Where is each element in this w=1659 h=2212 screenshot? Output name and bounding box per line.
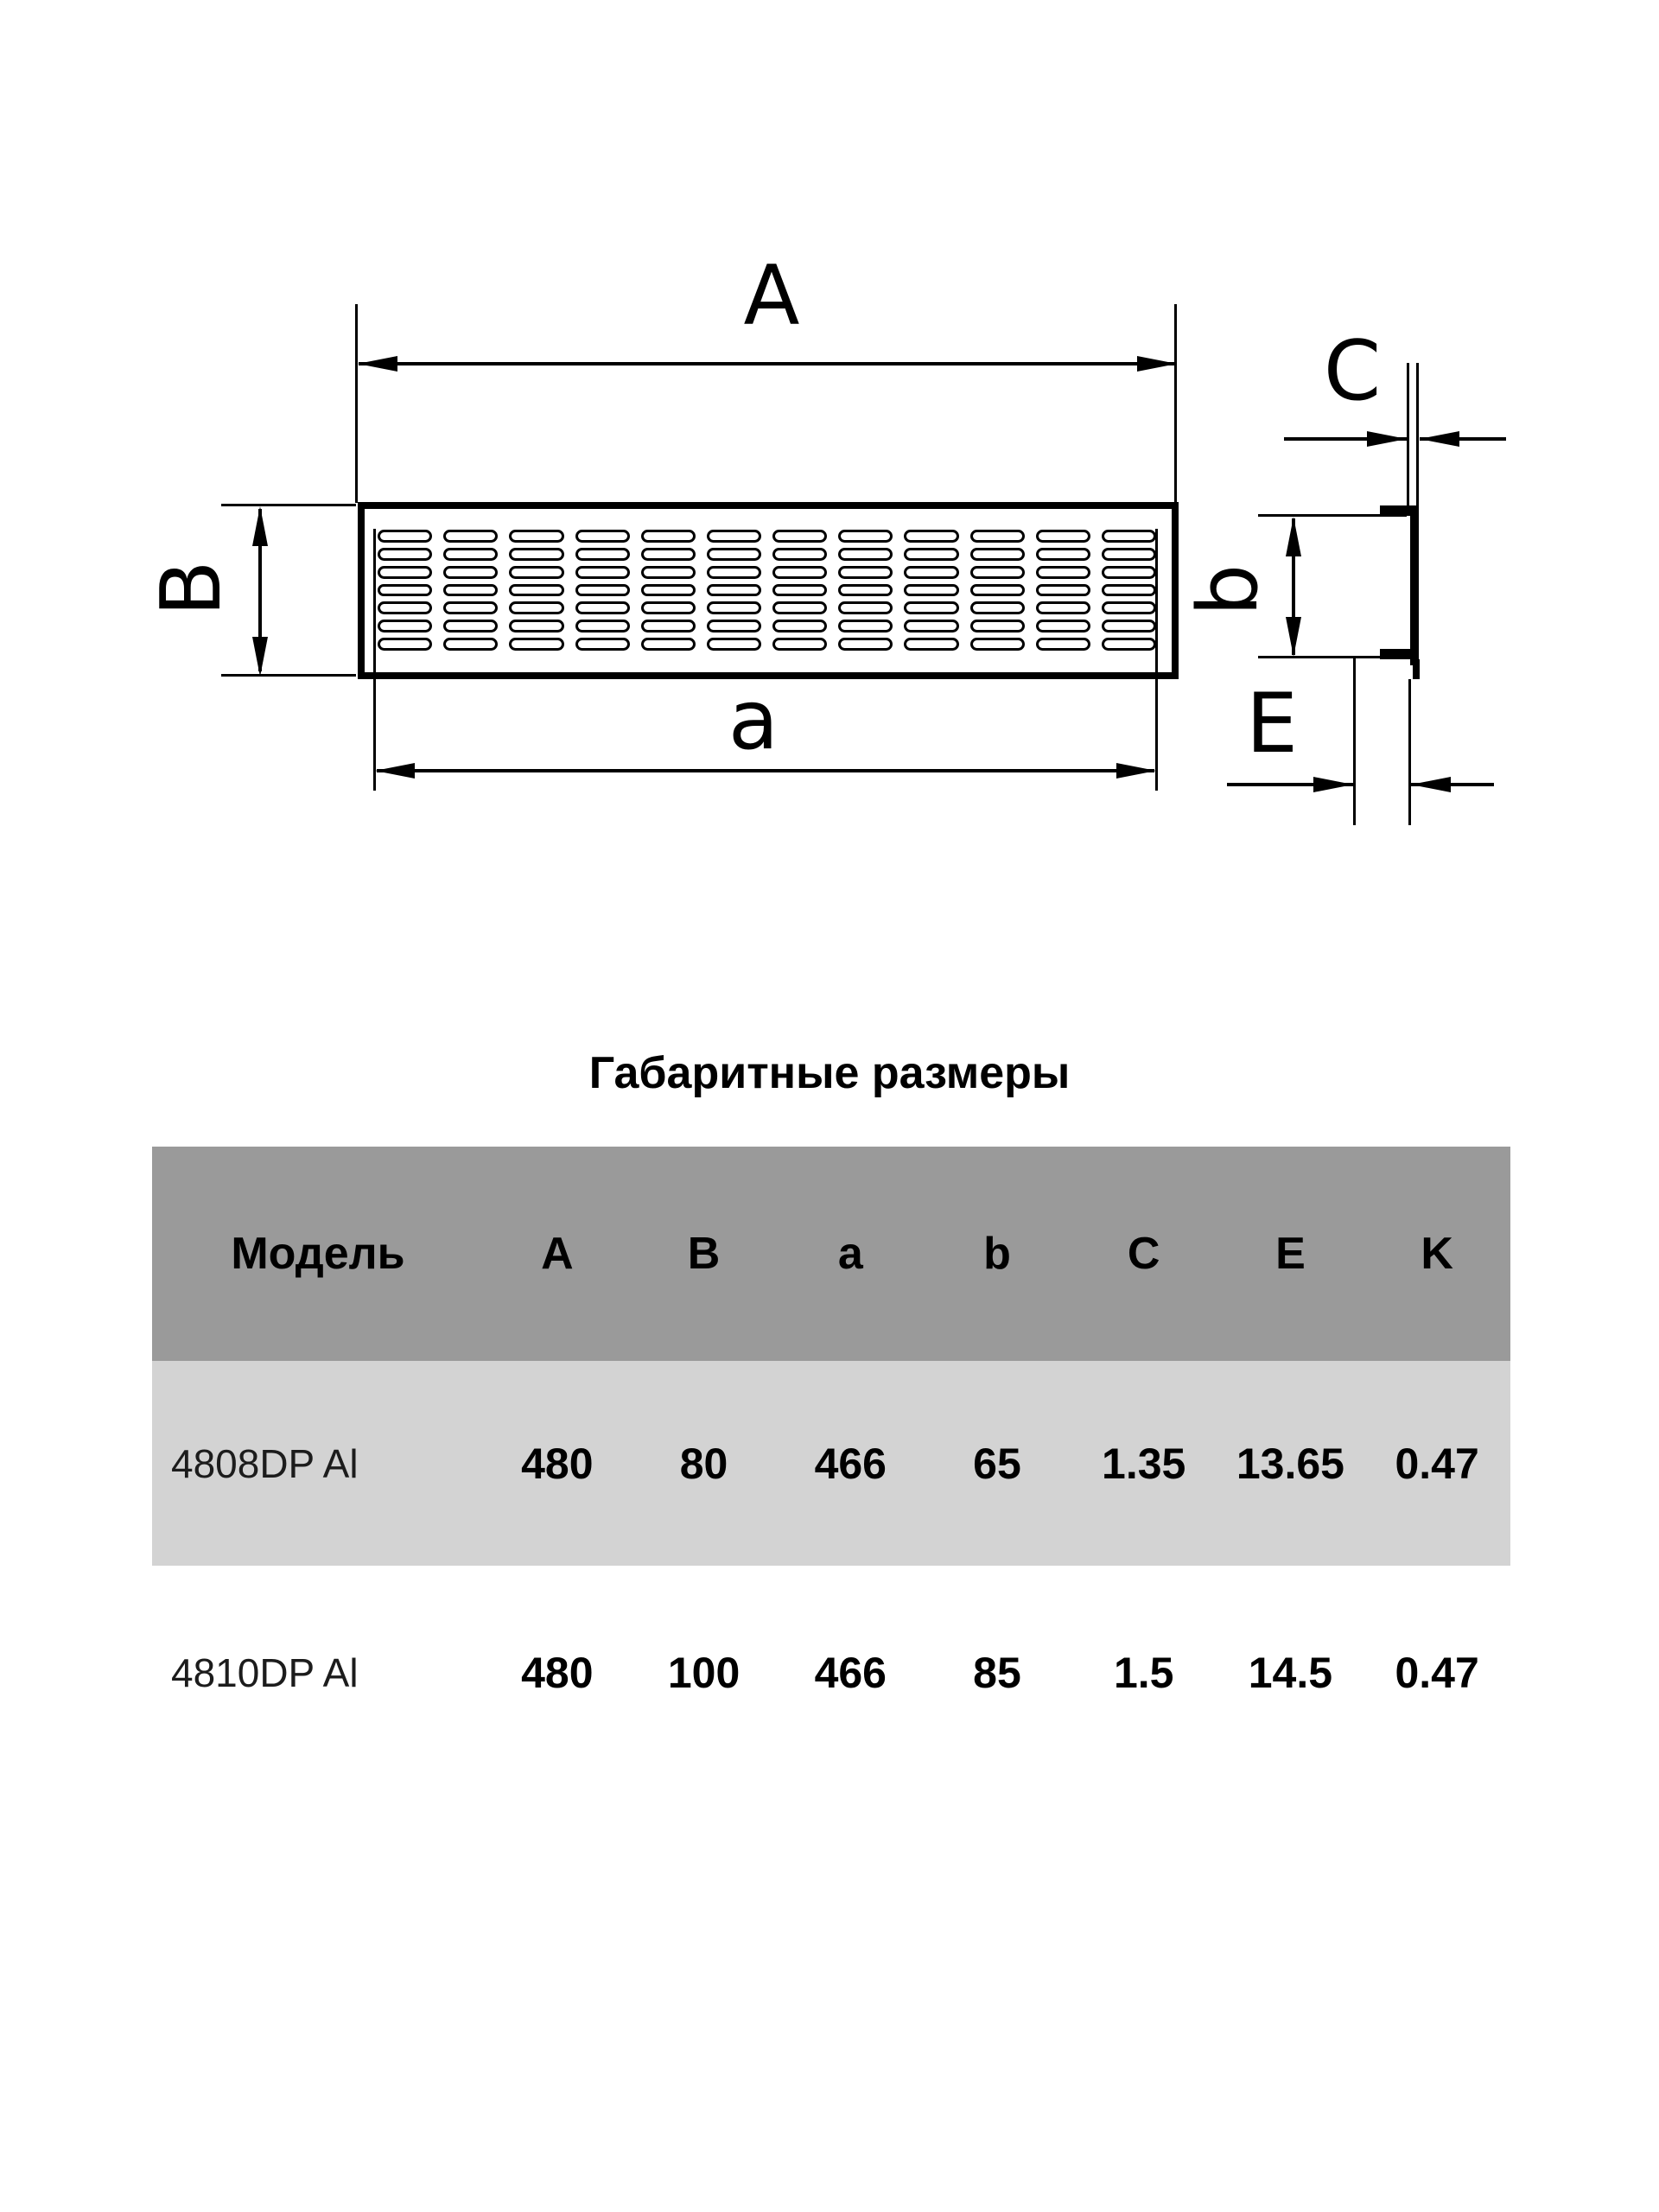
grille-slot xyxy=(838,620,893,632)
profile-spine xyxy=(1410,505,1419,665)
grille-slot xyxy=(509,638,563,651)
arrowhead-B-up-icon xyxy=(252,506,268,546)
grille-slot xyxy=(575,530,630,543)
value-b: 65 xyxy=(924,1439,1071,1489)
page: A B a C b E Габаритные размеры Модель A xyxy=(0,0,1659,2212)
slots-grid xyxy=(378,530,1156,651)
grille-slot xyxy=(772,638,827,651)
table-row-4808: 4808DP Al 480 80 466 65 1.35 13.65 0.47 xyxy=(152,1361,1510,1566)
ext-line-B-bottom xyxy=(221,674,356,677)
grille-slot xyxy=(575,601,630,614)
grille-slot xyxy=(509,548,563,561)
value-b: 85 xyxy=(924,1648,1071,1698)
grille-slot xyxy=(443,584,498,597)
grille-slot xyxy=(575,638,630,651)
grille-slot xyxy=(641,638,696,651)
grille-slot xyxy=(443,601,498,614)
grille-slot xyxy=(378,548,432,561)
grille-slot xyxy=(838,638,893,651)
header-B: B xyxy=(631,1228,778,1280)
dim-line-a xyxy=(377,769,1154,772)
grille-slot xyxy=(378,530,432,543)
grille-slot xyxy=(772,566,827,579)
grille-slot xyxy=(1102,620,1156,632)
grille-slot xyxy=(641,530,696,543)
grille-slot xyxy=(707,601,761,614)
grille-slot xyxy=(772,601,827,614)
table-header-row: Модель A B a b C E K xyxy=(152,1147,1510,1361)
dim-label-C: C xyxy=(1300,328,1404,415)
arrowhead-a-left-icon xyxy=(375,763,415,779)
model-name: 4808DP Al xyxy=(152,1440,484,1487)
value-B: 100 xyxy=(631,1648,778,1698)
grille-slot xyxy=(1102,548,1156,561)
grille-slot xyxy=(707,584,761,597)
grille-slot xyxy=(443,566,498,579)
grille-slot xyxy=(904,530,958,543)
value-C: 1.35 xyxy=(1071,1439,1217,1489)
grille-slot xyxy=(707,566,761,579)
grille-slot xyxy=(970,620,1025,632)
grille-slot xyxy=(772,548,827,561)
grille-slot xyxy=(838,548,893,561)
grille-slot xyxy=(575,548,630,561)
grille-slot xyxy=(509,530,563,543)
header-A: A xyxy=(484,1228,631,1280)
table-title: Габаритные размеры xyxy=(0,1047,1659,1099)
grille-slot xyxy=(575,584,630,597)
value-A: 480 xyxy=(484,1439,631,1489)
arrowhead-C-left-icon xyxy=(1367,431,1407,447)
grille-slot xyxy=(509,584,563,597)
grille-slot xyxy=(1036,584,1090,597)
header-model: Модель xyxy=(152,1228,484,1280)
value-K: 0.47 xyxy=(1363,1648,1510,1698)
value-B: 80 xyxy=(631,1439,778,1489)
model-name: 4810DP Al xyxy=(152,1649,484,1696)
grille-slot xyxy=(575,566,630,579)
value-A: 480 xyxy=(484,1648,631,1698)
ext-line-a-right xyxy=(1155,529,1158,791)
grille-slot xyxy=(904,584,958,597)
grille-slot xyxy=(904,566,958,579)
grille-slot xyxy=(707,638,761,651)
grille-slot xyxy=(1036,638,1090,651)
grille-slot xyxy=(772,584,827,597)
grille-slot xyxy=(1102,530,1156,543)
grille-slot xyxy=(1036,566,1090,579)
grille-slot xyxy=(1102,584,1156,597)
value-E: 13.65 xyxy=(1217,1439,1364,1489)
dim-label-E: E xyxy=(1220,681,1324,767)
value-C: 1.5 xyxy=(1071,1648,1217,1698)
grille-slot xyxy=(1102,601,1156,614)
grille-slot xyxy=(904,548,958,561)
grille-slot xyxy=(443,638,498,651)
grille-slot xyxy=(707,530,761,543)
grille-slot xyxy=(1036,620,1090,632)
value-a: 466 xyxy=(777,1439,924,1489)
grille-slot xyxy=(509,601,563,614)
grille-slot xyxy=(1036,601,1090,614)
grille-slot xyxy=(904,620,958,632)
dim-line-A xyxy=(359,362,1176,365)
grille-slot xyxy=(641,548,696,561)
grille-slot xyxy=(641,620,696,632)
grille-slot xyxy=(575,620,630,632)
ext-line-A-right xyxy=(1174,304,1177,503)
arrowhead-b-up-icon xyxy=(1286,517,1301,556)
grille-slot xyxy=(378,620,432,632)
grille-slot xyxy=(970,530,1025,543)
value-a: 466 xyxy=(777,1648,924,1698)
value-E: 14.5 xyxy=(1217,1648,1364,1698)
arrowhead-b-down-icon xyxy=(1286,617,1301,657)
grille-slot xyxy=(509,620,563,632)
grille-slot xyxy=(641,584,696,597)
grille-slot xyxy=(970,601,1025,614)
header-K: K xyxy=(1363,1228,1510,1280)
grille-slot xyxy=(904,638,958,651)
grille-slot xyxy=(443,548,498,561)
header-C: C xyxy=(1071,1228,1217,1280)
grille-slot xyxy=(378,638,432,651)
grille-slot xyxy=(904,601,958,614)
grille-slot xyxy=(838,601,893,614)
arrowhead-A-left-icon xyxy=(358,356,397,372)
header-E: E xyxy=(1217,1228,1364,1280)
grille-slot xyxy=(772,530,827,543)
header-a: a xyxy=(777,1228,924,1280)
grille-slot xyxy=(838,566,893,579)
ext-line-B-top xyxy=(221,504,356,506)
grille-slot xyxy=(1102,566,1156,579)
grille-slot xyxy=(970,566,1025,579)
grille-slot xyxy=(378,584,432,597)
arrowhead-B-down-icon xyxy=(252,637,268,677)
arrowhead-A-right-icon xyxy=(1137,356,1177,372)
arrowhead-C-right-icon xyxy=(1420,431,1459,447)
grille-slot xyxy=(641,566,696,579)
grille-slot xyxy=(970,548,1025,561)
ext-line-A-left xyxy=(355,304,358,503)
dim-label-a: a xyxy=(702,677,805,764)
dim-label-B: B xyxy=(144,541,239,636)
grille-slot xyxy=(1102,638,1156,651)
grille-slot xyxy=(707,620,761,632)
header-b: b xyxy=(924,1228,1071,1280)
grille-slot xyxy=(970,638,1025,651)
grille-slot xyxy=(772,620,827,632)
dim-label-A: A xyxy=(720,253,823,340)
ext-line-E-right xyxy=(1408,679,1411,825)
table-row-4810: 4810DP Al 480 100 466 85 1.5 14.5 0.47 xyxy=(152,1566,1510,1780)
grille-slot xyxy=(1036,530,1090,543)
grille-slot xyxy=(1036,548,1090,561)
grille-slot xyxy=(378,566,432,579)
grille-slot xyxy=(443,620,498,632)
profile-plate-line-outer xyxy=(1407,363,1409,506)
profile-plate-line-inner xyxy=(1416,363,1419,506)
arrowhead-a-right-icon xyxy=(1116,763,1156,779)
ext-line-b-bottom xyxy=(1258,656,1407,658)
arrowhead-E-left-icon xyxy=(1313,777,1353,792)
grille-slot xyxy=(707,548,761,561)
dim-label-b: b xyxy=(1181,543,1276,638)
dimensions-table: Модель A B a b C E K 4808DP Al 480 80 46… xyxy=(152,1147,1510,1780)
grille-slot xyxy=(443,530,498,543)
value-K: 0.47 xyxy=(1363,1439,1510,1489)
grille-slot xyxy=(641,601,696,614)
ext-line-a-left xyxy=(373,529,376,791)
grille-slot xyxy=(970,584,1025,597)
ext-line-b-top xyxy=(1258,514,1407,517)
grille-slot xyxy=(509,566,563,579)
grille-slot xyxy=(838,530,893,543)
grille-slot xyxy=(378,601,432,614)
profile-foot xyxy=(1413,659,1420,679)
arrowhead-E-right-icon xyxy=(1411,777,1451,792)
ext-line-E-left xyxy=(1353,658,1356,825)
grille-slot xyxy=(838,584,893,597)
